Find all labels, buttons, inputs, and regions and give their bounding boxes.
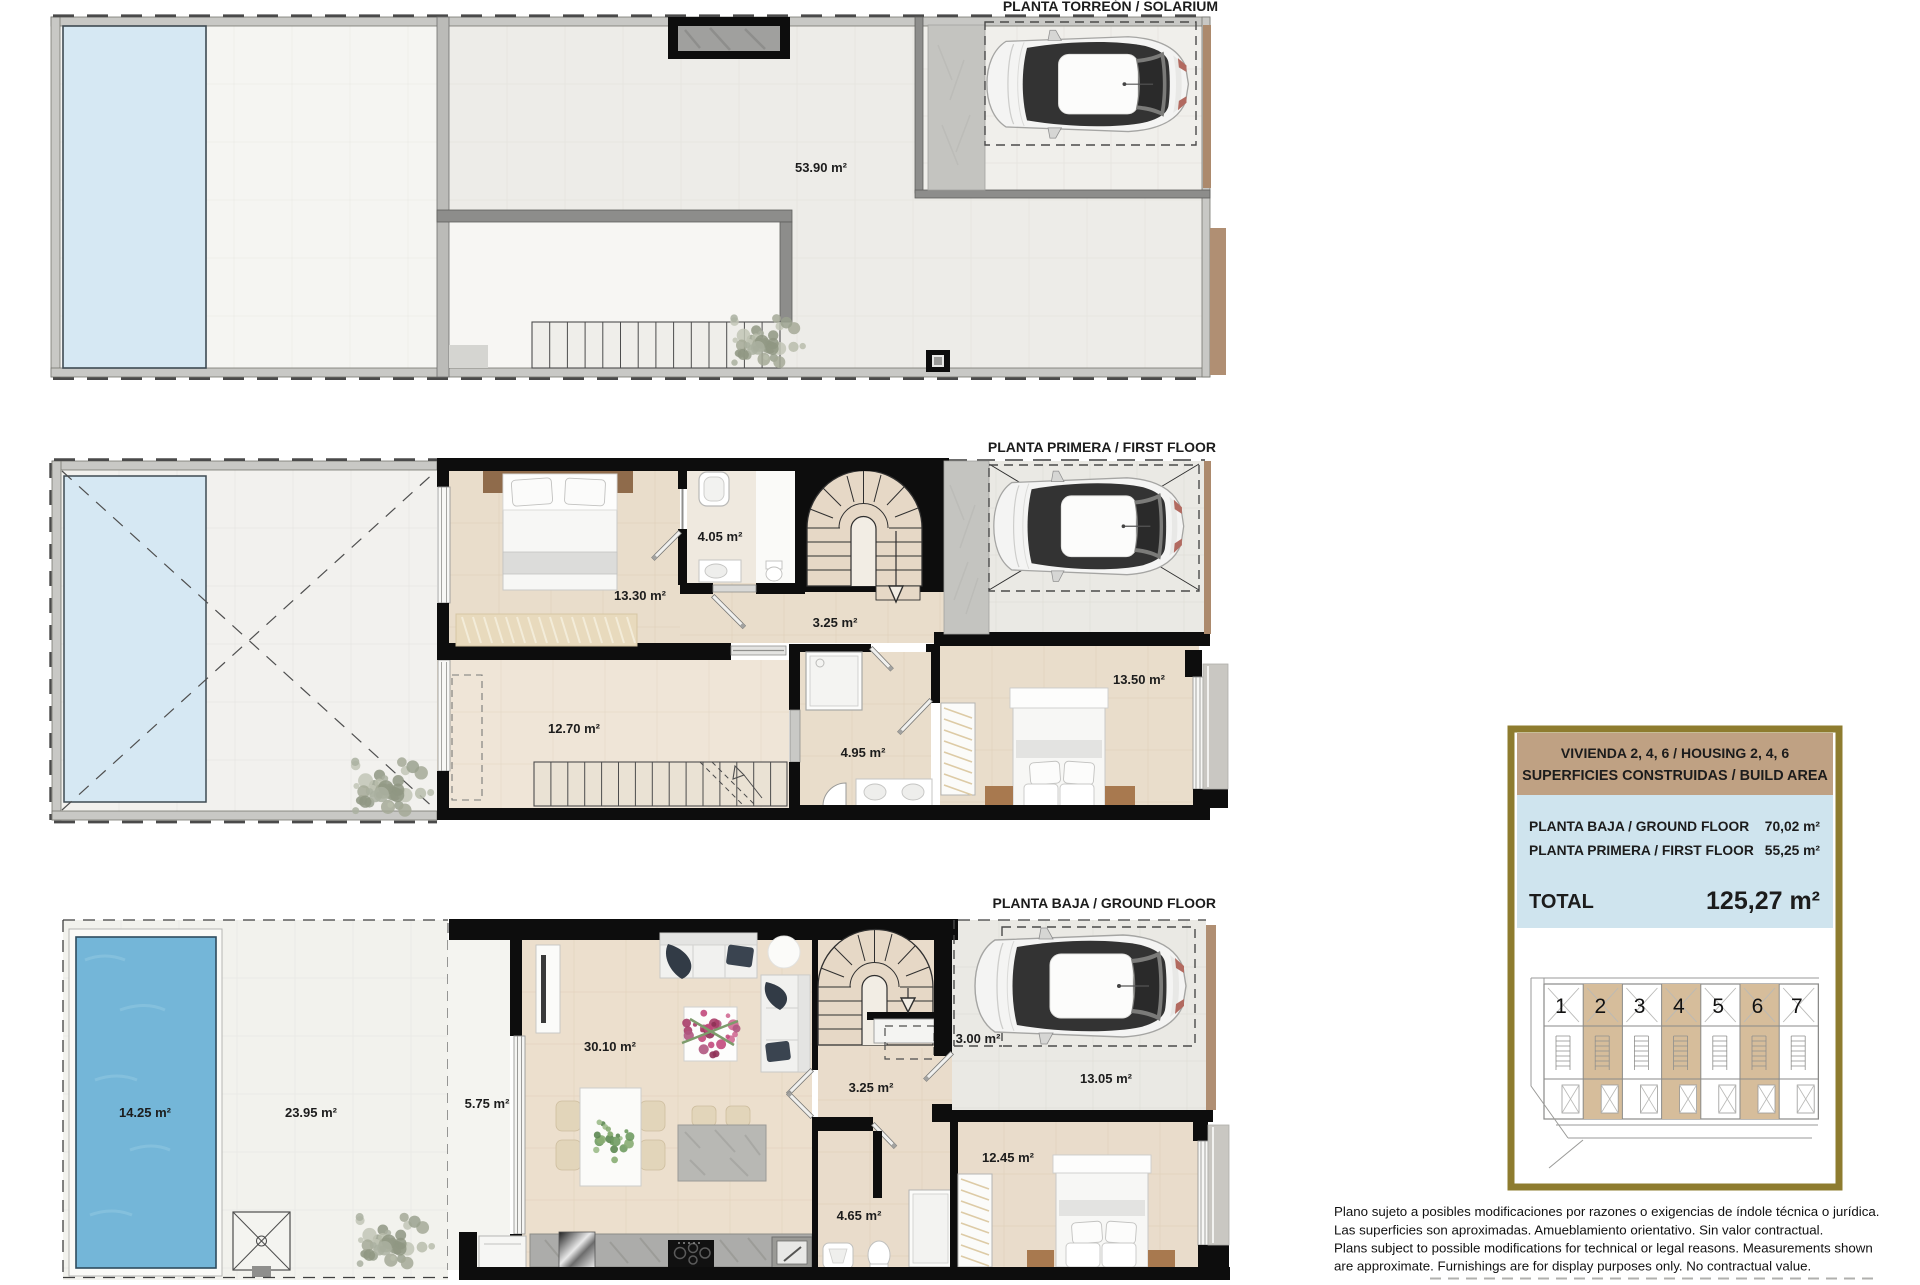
svg-text:13.30 m²: 13.30 m² xyxy=(614,588,667,603)
svg-text:125,27 m²: 125,27 m² xyxy=(1706,887,1820,915)
svg-text:PLANTA BAJA / GROUND FLOOR: PLANTA BAJA / GROUND FLOOR xyxy=(1529,819,1749,834)
svg-text:4: 4 xyxy=(1673,995,1685,1018)
svg-text:3: 3 xyxy=(1634,995,1646,1018)
svg-text:3.25 m²: 3.25 m² xyxy=(849,1080,894,1095)
svg-text:53.90 m²: 53.90 m² xyxy=(795,160,848,175)
svg-text:3.00 m²: 3.00 m² xyxy=(956,1031,1001,1046)
svg-text:70,02 m²: 70,02 m² xyxy=(1765,819,1821,834)
svg-text:23.95 m²: 23.95 m² xyxy=(285,1105,338,1120)
svg-text:6: 6 xyxy=(1752,995,1764,1018)
svg-text:4.95 m²: 4.95 m² xyxy=(841,745,886,760)
svg-text:PLANTA PRIMERA / FIRST FLOOR: PLANTA PRIMERA / FIRST FLOOR xyxy=(1529,843,1754,858)
svg-text:55,25 m²: 55,25 m² xyxy=(1765,843,1821,858)
svg-text:4.65 m²: 4.65 m² xyxy=(837,1208,882,1223)
svg-text:are approximate. Furnishings a: are approximate. Furnishings are for dis… xyxy=(1334,1259,1811,1274)
svg-text:PLANTA PRIMERA / FIRST FLOOR: PLANTA PRIMERA / FIRST FLOOR xyxy=(988,439,1216,455)
svg-text:30.10 m²: 30.10 m² xyxy=(584,1039,637,1054)
svg-text:TOTAL: TOTAL xyxy=(1529,891,1594,913)
svg-text:Plans subject to possible modi: Plans subject to possible modifications … xyxy=(1334,1241,1873,1256)
svg-text:13.50 m²: 13.50 m² xyxy=(1113,672,1166,687)
svg-text:4.05 m²: 4.05 m² xyxy=(698,529,743,544)
svg-text:14.25 m²: 14.25 m² xyxy=(119,1105,172,1120)
svg-text:12.70 m²: 12.70 m² xyxy=(548,721,601,736)
svg-text:5: 5 xyxy=(1712,995,1724,1018)
svg-text:3.25 m²: 3.25 m² xyxy=(813,615,858,630)
svg-text:12.45 m²: 12.45 m² xyxy=(982,1150,1035,1165)
svg-text:SUPERFICIES CONSTRUIDAS / BUIL: SUPERFICIES CONSTRUIDAS / BUILD AREA xyxy=(1522,768,1828,784)
svg-text:Plano sujeto a posibles modifi: Plano sujeto a posibles modificaciones p… xyxy=(1334,1204,1880,1219)
svg-text:PLANTA TORREÓN / SOLARIUM: PLANTA TORREÓN / SOLARIUM xyxy=(1003,0,1218,14)
svg-text:1: 1 xyxy=(1555,995,1567,1018)
svg-text:2: 2 xyxy=(1594,995,1606,1018)
svg-text:7: 7 xyxy=(1791,995,1803,1018)
svg-text:13.05 m²: 13.05 m² xyxy=(1080,1071,1133,1086)
svg-text:PLANTA BAJA / GROUND FLOOR: PLANTA BAJA / GROUND FLOOR xyxy=(993,895,1216,911)
svg-text:5.75 m²: 5.75 m² xyxy=(465,1096,510,1111)
svg-text:VIVIENDA 2, 4, 6 / HOUSING 2,: VIVIENDA 2, 4, 6 / HOUSING 2, 4, 6 xyxy=(1561,745,1789,761)
svg-text:Las superficies son aproximada: Las superficies son aproximadas. Amuebla… xyxy=(1334,1223,1823,1238)
